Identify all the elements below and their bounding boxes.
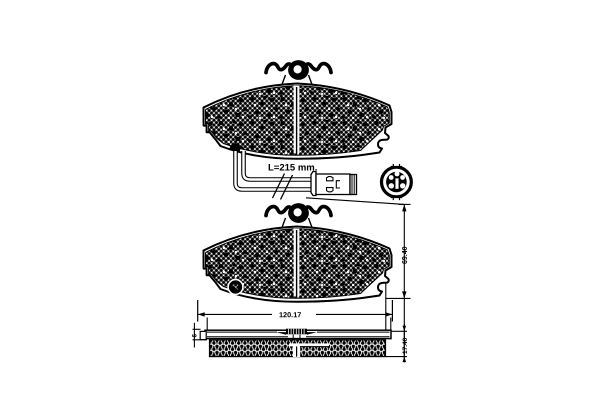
svg-text:69.40: 69.40 xyxy=(402,246,409,264)
svg-text:120.17: 120.17 xyxy=(279,310,301,319)
svg-text:6: 6 xyxy=(192,334,199,338)
svg-text:L=215 mm.: L=215 mm. xyxy=(268,163,317,174)
svg-text:17.40: 17.40 xyxy=(402,337,409,354)
